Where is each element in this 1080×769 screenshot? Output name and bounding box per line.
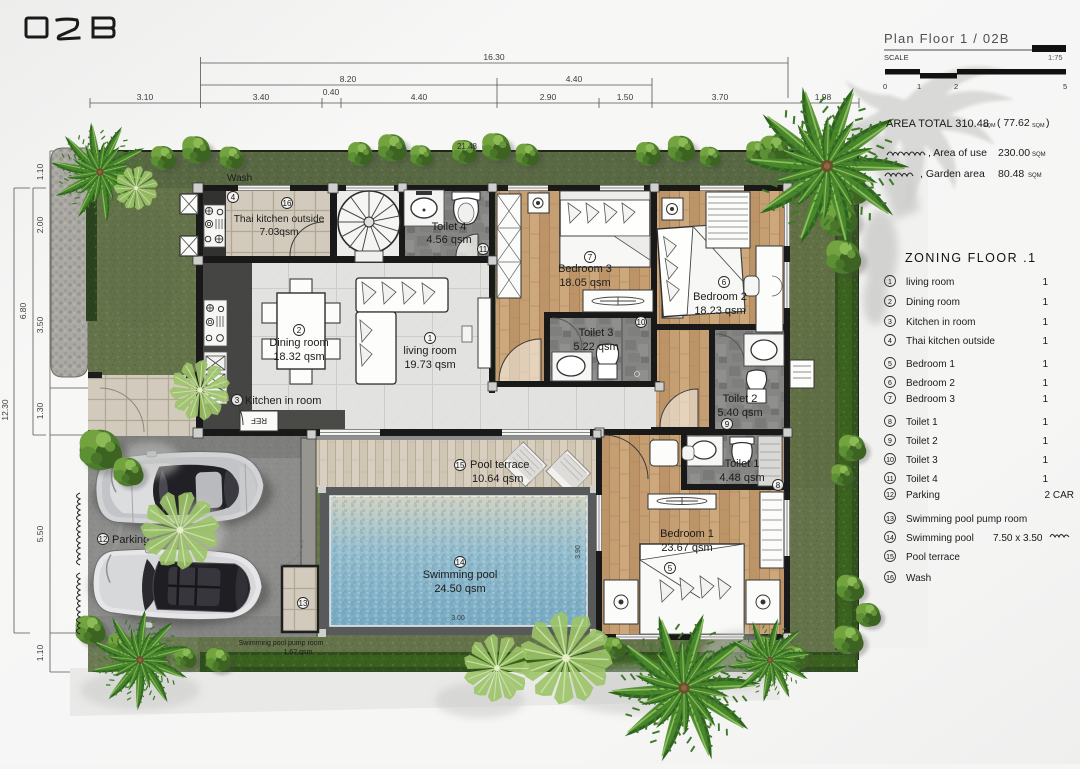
svg-text:AREA TOTAL 310.48: AREA TOTAL 310.48 xyxy=(886,118,989,130)
svg-text:24.50 qsm: 24.50 qsm xyxy=(434,583,485,595)
svg-text:Dining room: Dining room xyxy=(269,337,328,349)
svg-text:2.90: 2.90 xyxy=(540,92,557,102)
svg-text:6.80: 6.80 xyxy=(18,302,28,319)
svg-text:2: 2 xyxy=(297,326,302,335)
svg-text:Toilet 1: Toilet 1 xyxy=(725,458,760,470)
svg-text:SCALE: SCALE xyxy=(884,53,909,62)
svg-text:0: 0 xyxy=(883,82,887,91)
svg-text:Kitchen in room: Kitchen in room xyxy=(245,395,321,407)
svg-text:Bedroom 3: Bedroom 3 xyxy=(558,263,612,275)
svg-text:4: 4 xyxy=(231,193,236,202)
svg-text:16: 16 xyxy=(283,199,292,208)
svg-text:1: 1 xyxy=(1042,336,1048,347)
svg-text:14: 14 xyxy=(886,535,894,542)
svg-text:REF: REF xyxy=(251,416,267,425)
svg-text:Toilet 3: Toilet 3 xyxy=(579,327,614,339)
svg-text:9: 9 xyxy=(888,438,892,445)
svg-text:15: 15 xyxy=(456,461,465,470)
svg-text:11: 11 xyxy=(479,245,488,254)
svg-text:Wash: Wash xyxy=(906,573,931,584)
svg-text:16: 16 xyxy=(886,575,894,582)
svg-text:6: 6 xyxy=(722,278,727,287)
svg-text:1: 1 xyxy=(888,279,892,286)
svg-text:5: 5 xyxy=(668,564,673,573)
svg-text:Pool terrace: Pool terrace xyxy=(470,459,529,471)
svg-text:living room: living room xyxy=(906,277,954,288)
svg-text:5: 5 xyxy=(888,361,892,368)
svg-text:2: 2 xyxy=(888,299,892,306)
svg-text:21.48: 21.48 xyxy=(457,142,478,151)
svg-text:1: 1 xyxy=(1042,359,1048,370)
svg-text:SQM: SQM xyxy=(1032,152,1046,158)
svg-text:2: 2 xyxy=(954,82,958,91)
svg-text:1: 1 xyxy=(1042,474,1048,485)
svg-text:11: 11 xyxy=(886,476,893,483)
svg-text:1: 1 xyxy=(1042,394,1048,405)
svg-text:( 77.62: ( 77.62 xyxy=(997,117,1030,129)
svg-text:Dining room: Dining room xyxy=(906,297,960,308)
svg-text:12: 12 xyxy=(99,535,108,544)
svg-text:3: 3 xyxy=(888,319,892,326)
svg-text:Pool terrace: Pool terrace xyxy=(906,552,960,563)
svg-text:13: 13 xyxy=(886,516,894,523)
svg-text:1: 1 xyxy=(1042,317,1048,328)
svg-text:Bedroom 3: Bedroom 3 xyxy=(906,394,955,405)
svg-text:SQM: SQM xyxy=(1032,123,1045,129)
svg-text:4.48 qsm: 4.48 qsm xyxy=(719,472,764,484)
svg-text:8.20: 8.20 xyxy=(340,74,357,84)
svg-text:2.00: 2.00 xyxy=(35,216,45,233)
svg-text:8: 8 xyxy=(888,419,892,426)
svg-text:Wash: Wash xyxy=(227,173,252,184)
svg-text:): ) xyxy=(1046,117,1050,129)
svg-text:Parking: Parking xyxy=(906,490,940,501)
svg-text:Toilet 4: Toilet 4 xyxy=(906,474,938,485)
svg-text:12.30: 12.30 xyxy=(0,399,10,421)
svg-text:14: 14 xyxy=(456,558,465,567)
svg-text:5.40 qsm: 5.40 qsm xyxy=(717,407,762,419)
svg-text:ZONING FLOOR .1: ZONING FLOOR .1 xyxy=(905,251,1037,265)
svg-text:3: 3 xyxy=(235,396,240,405)
svg-text:1: 1 xyxy=(1042,455,1048,466)
svg-text:15: 15 xyxy=(886,554,894,561)
svg-text:Toilet 4: Toilet 4 xyxy=(432,221,467,233)
svg-text:Toilet 2: Toilet 2 xyxy=(723,393,758,405)
svg-text:8: 8 xyxy=(776,481,781,490)
svg-text:Bedroom 2: Bedroom 2 xyxy=(906,378,955,389)
svg-text:Bedroom 1: Bedroom 1 xyxy=(906,359,955,370)
svg-text:3.90: 3.90 xyxy=(575,545,582,559)
svg-text:3.50: 3.50 xyxy=(35,316,45,333)
svg-text:7: 7 xyxy=(588,253,593,262)
svg-text:Swimming pool: Swimming pool xyxy=(906,533,974,544)
svg-text:23.67 qsm: 23.67 qsm xyxy=(661,542,712,554)
svg-text:4.56 qsm: 4.56 qsm xyxy=(426,234,471,246)
svg-text:1.50: 1.50 xyxy=(617,92,634,102)
svg-text:1.10: 1.10 xyxy=(35,644,45,661)
svg-text:1: 1 xyxy=(917,82,921,91)
svg-text:Swimming pool pump room: Swimming pool pump room xyxy=(906,514,1027,525)
svg-text:6: 6 xyxy=(888,380,892,387)
svg-text:1: 1 xyxy=(1042,436,1048,447)
svg-text:16.30: 16.30 xyxy=(483,52,505,62)
svg-text:3.00: 3.00 xyxy=(451,615,465,622)
svg-text:9: 9 xyxy=(725,420,730,429)
svg-text:Thai kitchen outside: Thai kitchen outside xyxy=(234,214,325,225)
svg-text:80.48: 80.48 xyxy=(998,168,1024,180)
svg-text:1: 1 xyxy=(1042,297,1048,308)
svg-text:Thai kitchen outside: Thai kitchen outside xyxy=(906,336,995,347)
svg-text:13: 13 xyxy=(299,599,308,608)
svg-text:Swimming pool: Swimming pool xyxy=(423,569,498,581)
svg-text:0.40: 0.40 xyxy=(323,87,340,97)
svg-text:SQM: SQM xyxy=(983,123,996,129)
svg-text:2 CAR: 2 CAR xyxy=(1045,490,1074,501)
svg-text:Swimming pool pump room: Swimming pool pump room xyxy=(239,640,324,647)
svg-text:Plan Floor 1 / 02B: Plan Floor 1 / 02B xyxy=(884,31,1010,46)
svg-text:18.05 qsm: 18.05 qsm xyxy=(559,277,610,289)
svg-text:7: 7 xyxy=(888,396,892,403)
svg-text:Bedroom 2: Bedroom 2 xyxy=(693,291,747,303)
svg-text:4.40: 4.40 xyxy=(566,74,583,84)
svg-text:Toilet 1: Toilet 1 xyxy=(906,417,938,428)
svg-text:3.40: 3.40 xyxy=(253,92,270,102)
svg-text:Toilet 2: Toilet 2 xyxy=(906,436,938,447)
svg-text:7.03qsm: 7.03qsm xyxy=(259,227,298,238)
svg-text:, Area of use: , Area of use xyxy=(928,147,987,159)
svg-text:18.32 qsm: 18.32 qsm xyxy=(273,351,324,363)
svg-text:5.22 qsm: 5.22 qsm xyxy=(573,341,618,353)
svg-text:1.10: 1.10 xyxy=(35,163,45,180)
svg-text:10.64 qsm: 10.64 qsm xyxy=(472,473,523,485)
svg-text:Bedroom 1: Bedroom 1 xyxy=(660,528,714,540)
svg-text:, Garden area: , Garden area xyxy=(920,168,985,180)
svg-text:5: 5 xyxy=(1063,82,1067,91)
svg-text:living room: living room xyxy=(403,345,456,357)
svg-text:1: 1 xyxy=(1042,378,1048,389)
svg-text:7.50 x 3.50: 7.50 x 3.50 xyxy=(993,533,1043,544)
svg-text:3.70: 3.70 xyxy=(712,92,729,102)
svg-text:3.10: 3.10 xyxy=(137,92,154,102)
svg-text:Parking: Parking xyxy=(112,534,149,546)
svg-text:230.00: 230.00 xyxy=(998,147,1030,159)
svg-text:10: 10 xyxy=(637,318,646,327)
svg-text:12: 12 xyxy=(886,492,894,499)
svg-text:SQM: SQM xyxy=(1028,173,1042,179)
svg-text:1: 1 xyxy=(1042,417,1048,428)
svg-text:4: 4 xyxy=(888,338,892,345)
svg-text:10: 10 xyxy=(886,457,894,464)
svg-text:1.62 qsm: 1.62 qsm xyxy=(284,649,313,656)
svg-text:1.30: 1.30 xyxy=(35,402,45,419)
svg-text:Toilet 3: Toilet 3 xyxy=(906,455,938,466)
svg-text:1: 1 xyxy=(1042,277,1048,288)
svg-text:18.23 qsm: 18.23 qsm xyxy=(694,305,745,317)
svg-text:1:75: 1:75 xyxy=(1048,53,1063,62)
svg-text:1: 1 xyxy=(428,334,433,343)
svg-text:4.40: 4.40 xyxy=(411,92,428,102)
svg-text:19.73 qsm: 19.73 qsm xyxy=(404,359,455,371)
svg-text:Kitchen in room: Kitchen in room xyxy=(906,317,975,328)
svg-text:5.50: 5.50 xyxy=(35,525,45,542)
